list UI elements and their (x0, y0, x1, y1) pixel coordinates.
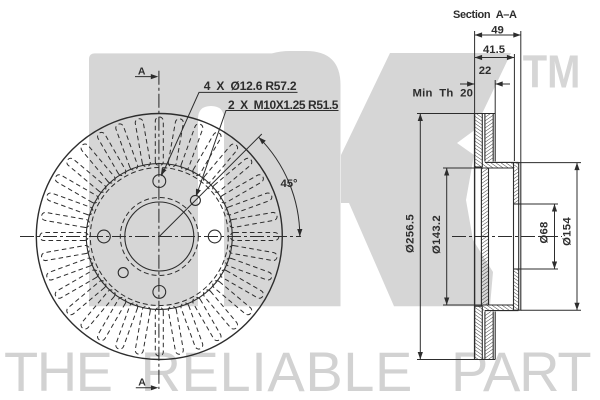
svg-text:2 X M10X1.25 R51.5: 2 X M10X1.25 R51.5 (228, 98, 339, 112)
svg-text:RELIABLE: RELIABLE (141, 340, 414, 400)
svg-text:PART: PART (451, 340, 590, 400)
svg-text:A: A (138, 376, 146, 388)
svg-text:TM: TM (523, 45, 581, 97)
svg-text:Section A–A: Section A–A (453, 9, 517, 21)
svg-text:22: 22 (479, 65, 492, 77)
svg-text:Ø143.2: Ø143.2 (431, 215, 443, 254)
svg-text:49: 49 (491, 25, 504, 37)
svg-text:Ø256.5: Ø256.5 (405, 214, 417, 253)
svg-text:A: A (138, 65, 146, 77)
svg-text:Ø68: Ø68 (539, 221, 551, 243)
svg-text:4 X Ø12.6 R57.2: 4 X Ø12.6 R57.2 (204, 79, 297, 93)
svg-text:Min Th 20: Min Th 20 (413, 87, 474, 99)
svg-text:41.5: 41.5 (483, 44, 505, 56)
svg-text:45°: 45° (280, 178, 298, 190)
svg-text:Ø154: Ø154 (562, 217, 574, 246)
svg-text:THE: THE (4, 340, 112, 400)
